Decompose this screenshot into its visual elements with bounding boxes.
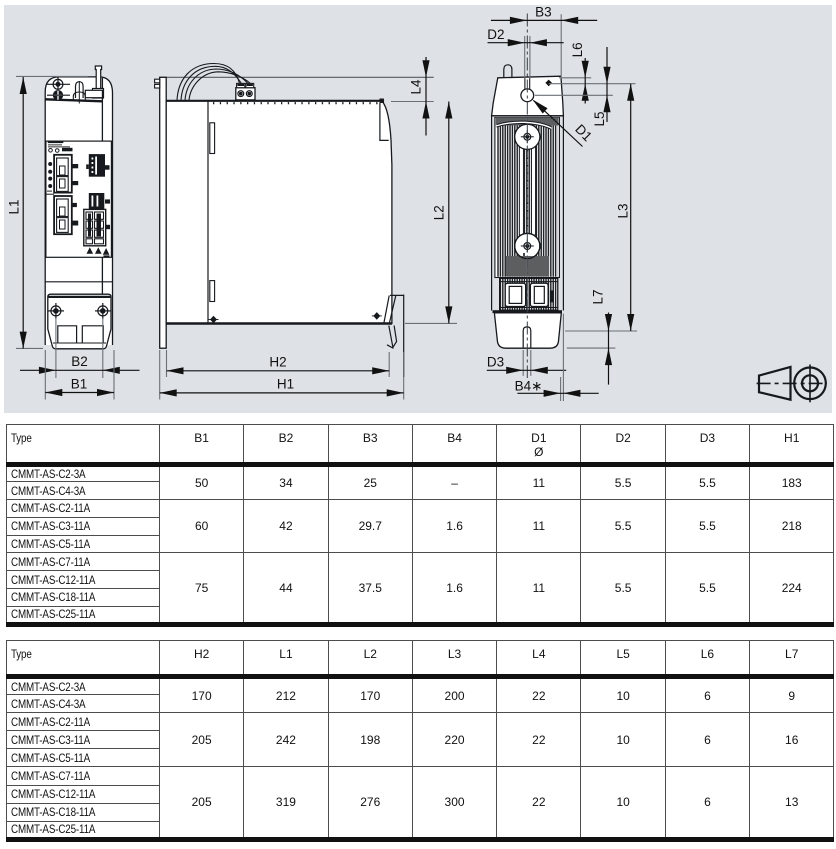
svg-text:L4: L4	[409, 79, 424, 95]
svg-text:D2: D2	[487, 27, 504, 42]
svg-text:L3: L3	[615, 203, 630, 218]
svg-text:D3: D3	[487, 354, 504, 369]
svg-text:H1: H1	[277, 376, 294, 391]
svg-text:B3: B3	[535, 5, 552, 20]
svg-text:B4∗: B4∗	[515, 378, 543, 393]
svg-text:H2: H2	[269, 354, 286, 369]
svg-text:B2: B2	[71, 354, 88, 369]
svg-text:L7: L7	[591, 289, 606, 304]
svg-text:L5: L5	[592, 111, 607, 126]
svg-text:L1: L1	[7, 199, 22, 214]
svg-text:L2: L2	[432, 205, 447, 220]
svg-text:B1: B1	[71, 377, 88, 392]
svg-text:L6: L6	[570, 42, 585, 57]
